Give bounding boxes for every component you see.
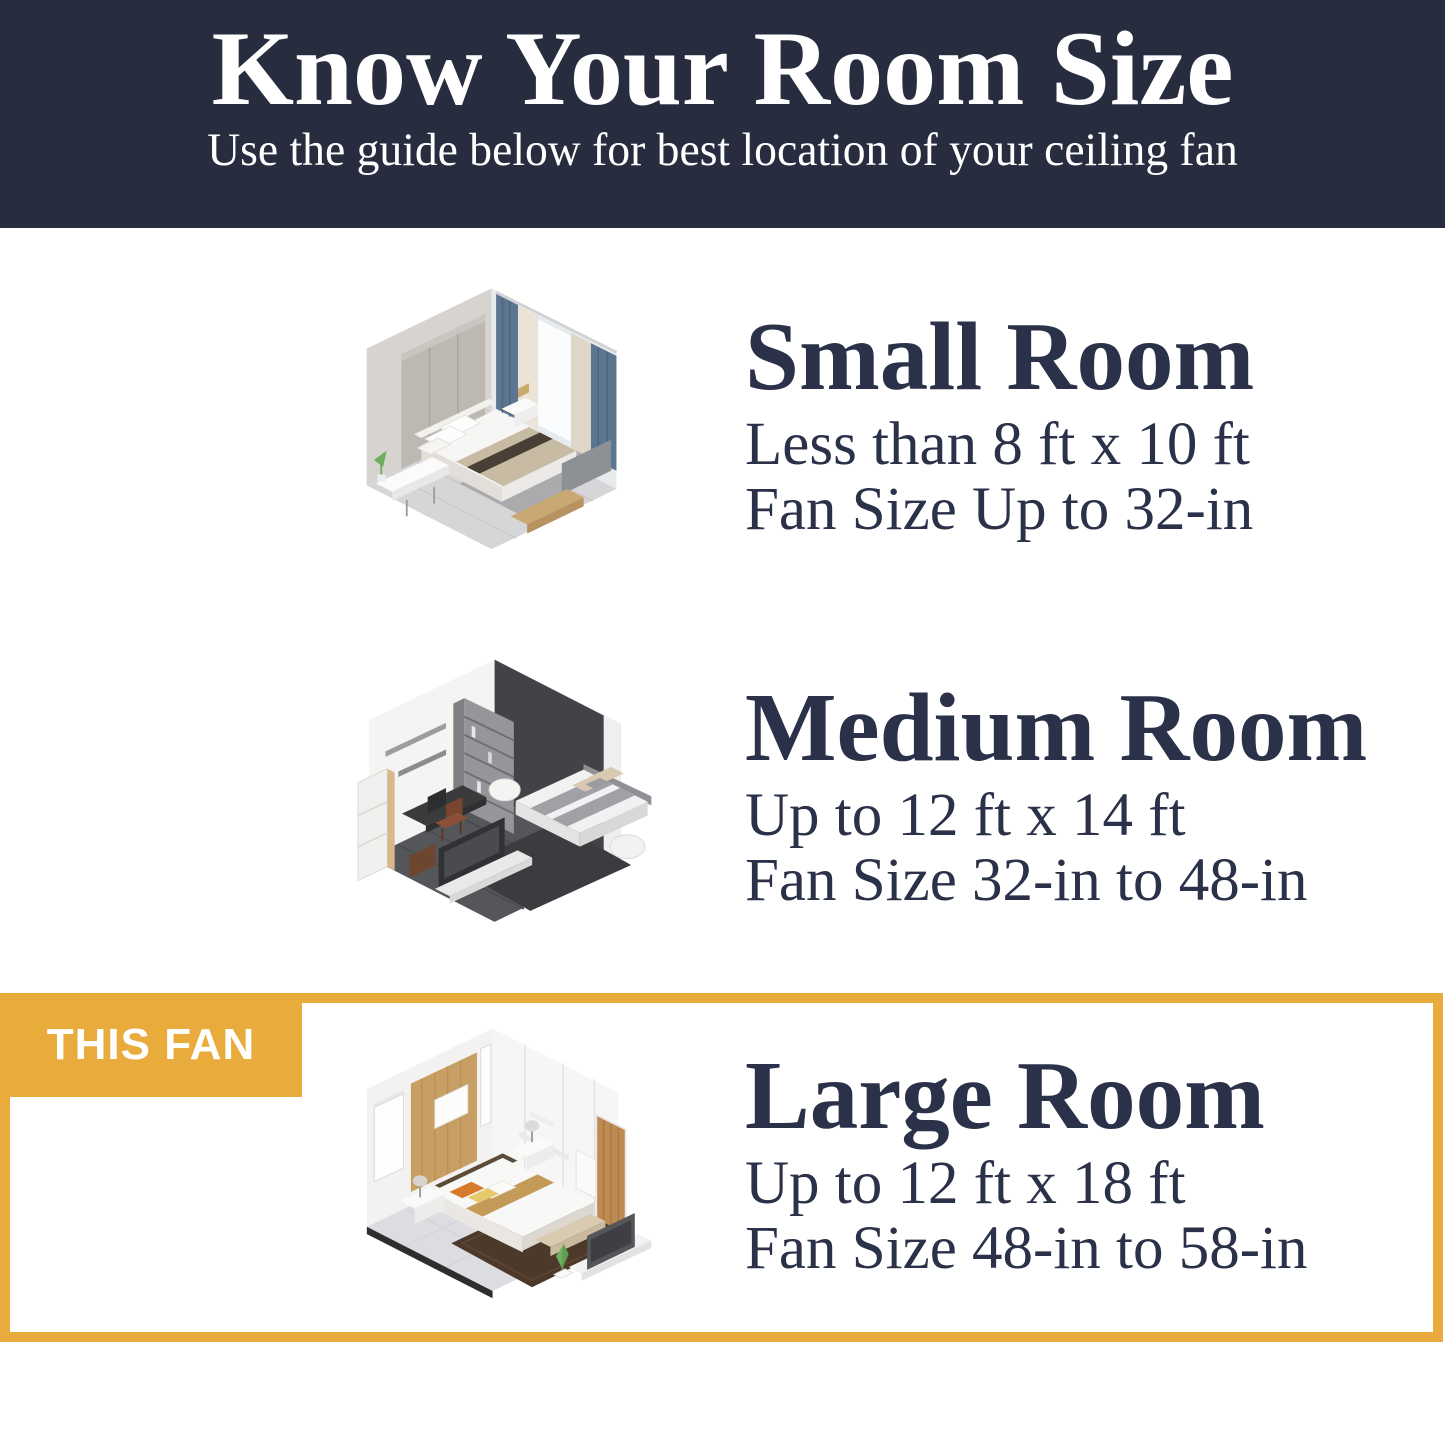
page-title: Know Your Room Size bbox=[0, 0, 1445, 122]
room-title: Large Room bbox=[745, 1042, 1308, 1151]
room-size-guide-infographic: Know Your Room Size Use the guide below … bbox=[0, 0, 1445, 1445]
medium-room-illustration bbox=[325, 640, 655, 958]
small-room-illustration bbox=[322, 272, 652, 582]
header-banner: Know Your Room Size Use the guide below … bbox=[0, 0, 1445, 228]
large-room-illustration bbox=[318, 1012, 658, 1324]
room-title: Medium Room bbox=[745, 674, 1367, 783]
large-room-isometric-bedroom bbox=[318, 1012, 658, 1324]
left-window bbox=[374, 1090, 403, 1182]
right-window bbox=[481, 1044, 491, 1127]
small-room-section: Small Room Less than 8 ft x 10 ft Fan Si… bbox=[745, 303, 1254, 542]
wardrobe bbox=[358, 769, 395, 881]
room-fan-size: Fan Size 48-in to 58-in bbox=[745, 1216, 1308, 1281]
room-dimensions: Less than 8 ft x 10 ft bbox=[745, 412, 1254, 477]
room-fan-size: Fan Size Up to 32-in bbox=[745, 477, 1254, 542]
this-fan-badge: THIS FAN bbox=[0, 993, 302, 1097]
room-fan-size: Fan Size 32-in to 48-in bbox=[745, 848, 1367, 913]
large-room-section: Large Room Up to 12 ft x 18 ft Fan Size … bbox=[745, 1042, 1308, 1281]
medium-room-section: Medium Room Up to 12 ft x 14 ft Fan Size… bbox=[745, 674, 1367, 913]
small-room-isometric-bedroom bbox=[322, 272, 652, 582]
room-title: Small Room bbox=[745, 303, 1254, 412]
medium-room-isometric-bedroom bbox=[325, 640, 655, 958]
room-dimensions: Up to 12 ft x 18 ft bbox=[745, 1151, 1308, 1216]
page-subtitle: Use the guide below for best location of… bbox=[22, 126, 1424, 175]
room-dimensions: Up to 12 ft x 14 ft bbox=[745, 783, 1367, 848]
